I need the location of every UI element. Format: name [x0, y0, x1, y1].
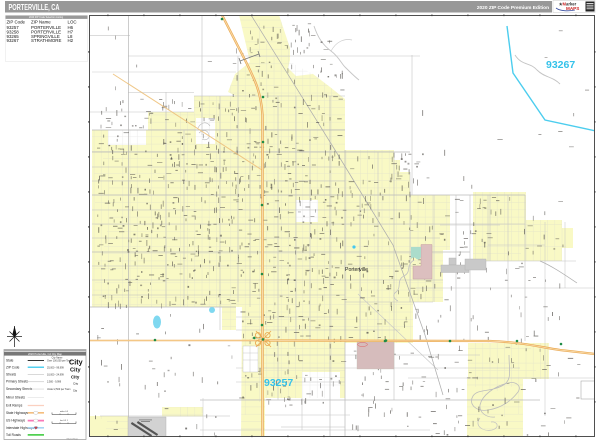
svg-text:km 0.5 1: km 0.5 1 — [60, 420, 69, 422]
svg-text:ZIP Code: ZIP Code — [6, 365, 20, 369]
svg-text:93267: 93267 — [546, 59, 575, 71]
svg-text:Streets: Streets — [6, 373, 17, 377]
svg-text:miles 0.5: miles 0.5 — [60, 411, 69, 413]
svg-text:City: City — [73, 381, 79, 385]
svg-text:2020 ZIP Code Premium Edition: 2020 ZIP Code Premium Edition — [477, 5, 549, 11]
svg-text:Toll Roads: Toll Roads — [6, 433, 21, 437]
svg-text:State: State — [6, 359, 14, 363]
svg-text:City: City — [70, 368, 81, 374]
svg-text:Exit Ramps: Exit Ramps — [6, 404, 23, 408]
svg-text:©MarkerMaps: ©MarkerMaps — [66, 437, 78, 440]
svg-text:10,000 - 24,999: 10,000 - 24,999 — [47, 374, 64, 377]
svg-text:PORTERVILLE, CA: PORTERVILLE, CA — [9, 3, 60, 12]
svg-text:City: City — [69, 358, 83, 367]
svg-text:LOC: LOC — [68, 19, 77, 24]
svg-text:STRATHMORE: STRATHMORE — [31, 38, 61, 43]
svg-text:ZIP Code: ZIP Code — [7, 19, 26, 24]
svg-text:H2: H2 — [68, 38, 74, 43]
svg-text:Primary Streets: Primary Streets — [6, 380, 28, 384]
svg-text:City: City — [71, 374, 80, 379]
svg-text:2,500 - 9,999: 2,500 - 9,999 — [47, 381, 62, 384]
svg-text:Minor Streets: Minor Streets — [6, 396, 25, 400]
svg-text:Under 2,500 per Town: Under 2,500 per Town — [47, 388, 71, 391]
svg-text:93257: 93257 — [264, 377, 293, 389]
svg-text:2020 Porterville, CA City Map: 2020 Porterville, CA City Map — [28, 352, 62, 356]
svg-text:93267: 93267 — [7, 38, 20, 43]
svg-text:Porterville: Porterville — [345, 267, 368, 273]
svg-text:25,000 - 99,999: 25,000 - 99,999 — [47, 366, 64, 369]
svg-text:US Highways: US Highways — [6, 419, 26, 423]
svg-text:ZIP Name: ZIP Name — [31, 19, 51, 24]
svg-text:State Highways: State Highways — [6, 411, 29, 415]
